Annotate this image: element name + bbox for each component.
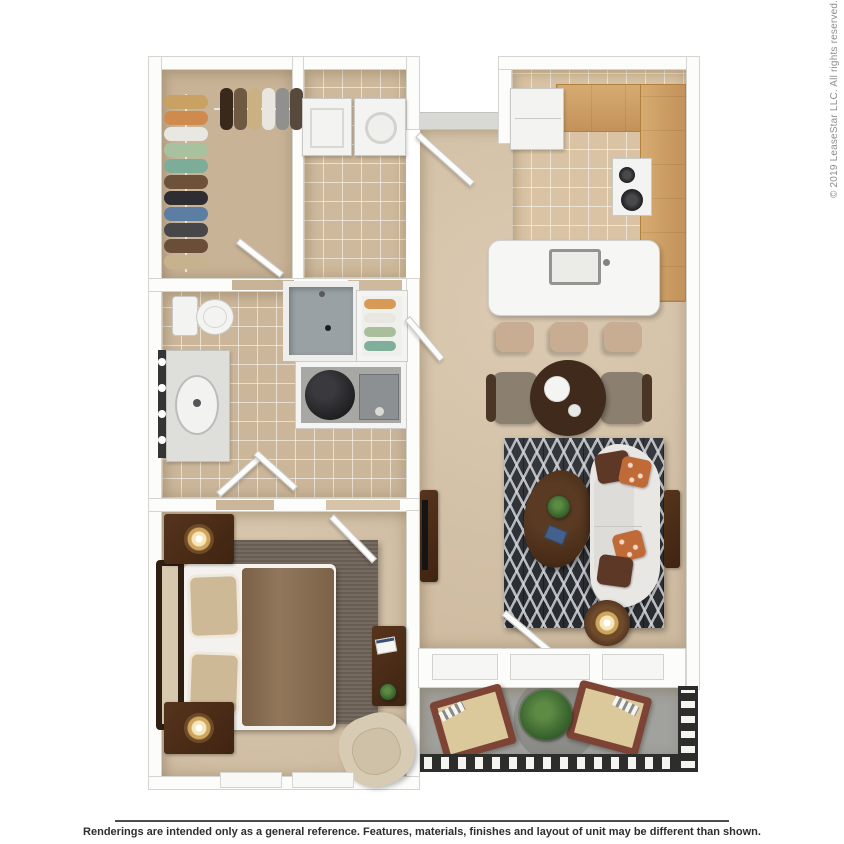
stove-burner-large [621,189,643,211]
footer-divider-line [115,820,729,822]
sofa-pillow-brown-bottom [596,554,634,588]
dryer [354,98,406,156]
dining-chair-right-back [642,374,652,422]
balcony-railing-bottom-slats [424,757,682,769]
bar-stool-2 [550,322,588,352]
balcony-railing-right-slats [681,690,695,768]
wall-entry-notch-left [406,56,420,130]
stove-burner-small [619,167,635,183]
disclaimer-text: Renderings are intended only as a genera… [62,826,782,838]
nightstand-bottom-lamp [184,713,214,743]
tv-console [420,490,438,582]
sofa-console-table [664,490,680,568]
wall-closet-laundry-divider [292,56,304,292]
coffee-table-plant [546,495,571,520]
dryer-door [365,112,397,144]
nightstand-top [164,514,234,564]
toilet-tank [172,296,198,336]
wall-right-exterior [686,56,700,690]
hvac-dial [375,407,384,416]
bedroom-desk [372,626,406,706]
wall-kitchen-top [498,56,700,70]
balcony-plant [520,690,572,740]
vanity-faucet [193,399,201,407]
floorplan-page: © 2019 LeaseStar LLC. All rights reserve… [0,0,844,844]
balcony-railing-bottom [420,754,686,772]
wall-bath-hallway [406,278,420,510]
balcony-chair-left-towel [438,701,466,722]
side-table-lamp [592,608,622,638]
balcony-railing-right [678,686,698,772]
armchair-cushion [346,721,407,781]
hanging-clothes-top [220,88,233,130]
nightstand-top-lamp [184,524,214,554]
vanity-mirror [158,350,166,458]
nightstand-bottom [164,702,234,754]
bar-stool-1 [496,322,534,352]
dinner-plate [544,376,570,402]
shower [283,281,359,361]
dining-chair-right [600,372,646,424]
side-table [584,600,630,646]
utility-closet [296,362,406,428]
dining-table [530,360,606,436]
bedroom-door-opening [326,500,400,510]
bathroom-vanity [166,350,230,462]
living-window-2 [602,654,664,680]
water-heater [305,370,355,420]
linen-closet [357,291,407,361]
bathroom-door-opening [216,500,274,510]
wall-top-left [148,56,420,70]
bedroom-window-2 [292,772,354,788]
dinner-cup [568,404,581,417]
coffee-table-book [544,525,568,545]
living-patio-door [510,654,590,680]
refrigerator [510,88,564,150]
hvac-unit [359,374,399,420]
desk-book [375,636,397,654]
bed-duvet [242,568,334,726]
linen-closet-clothes [364,299,396,309]
island-sink [549,249,601,285]
dining-chair-left-back [486,374,496,422]
refrigerator-door-split [515,118,561,119]
vanity-light-bulbs [158,358,166,366]
balcony-chair-right-towel [612,696,640,717]
sofa-pillow-orange-top [617,455,652,489]
stove [612,158,652,216]
hanging-clothes-left [164,95,208,109]
sofa-seat-divider [594,526,642,527]
entry-threshold [418,112,502,130]
washer [302,98,352,156]
closet-rod-left [185,94,187,272]
living-window-1 [432,654,498,680]
toilet-seat [203,306,227,328]
shower-drain [325,325,331,331]
copyright-text: © 2019 LeaseStar LLC. All rights reserve… [829,0,840,198]
desk-plant [380,684,396,700]
island-faucet [603,259,610,266]
washer-lid [310,108,344,148]
bed-pillow-top [187,573,241,639]
bedroom-window-1 [220,772,282,788]
shower-head [319,291,325,297]
kitchen-island [488,240,660,316]
toilet-bowl [196,299,234,335]
bar-stool-3 [604,322,642,352]
tv-screen [422,500,428,570]
